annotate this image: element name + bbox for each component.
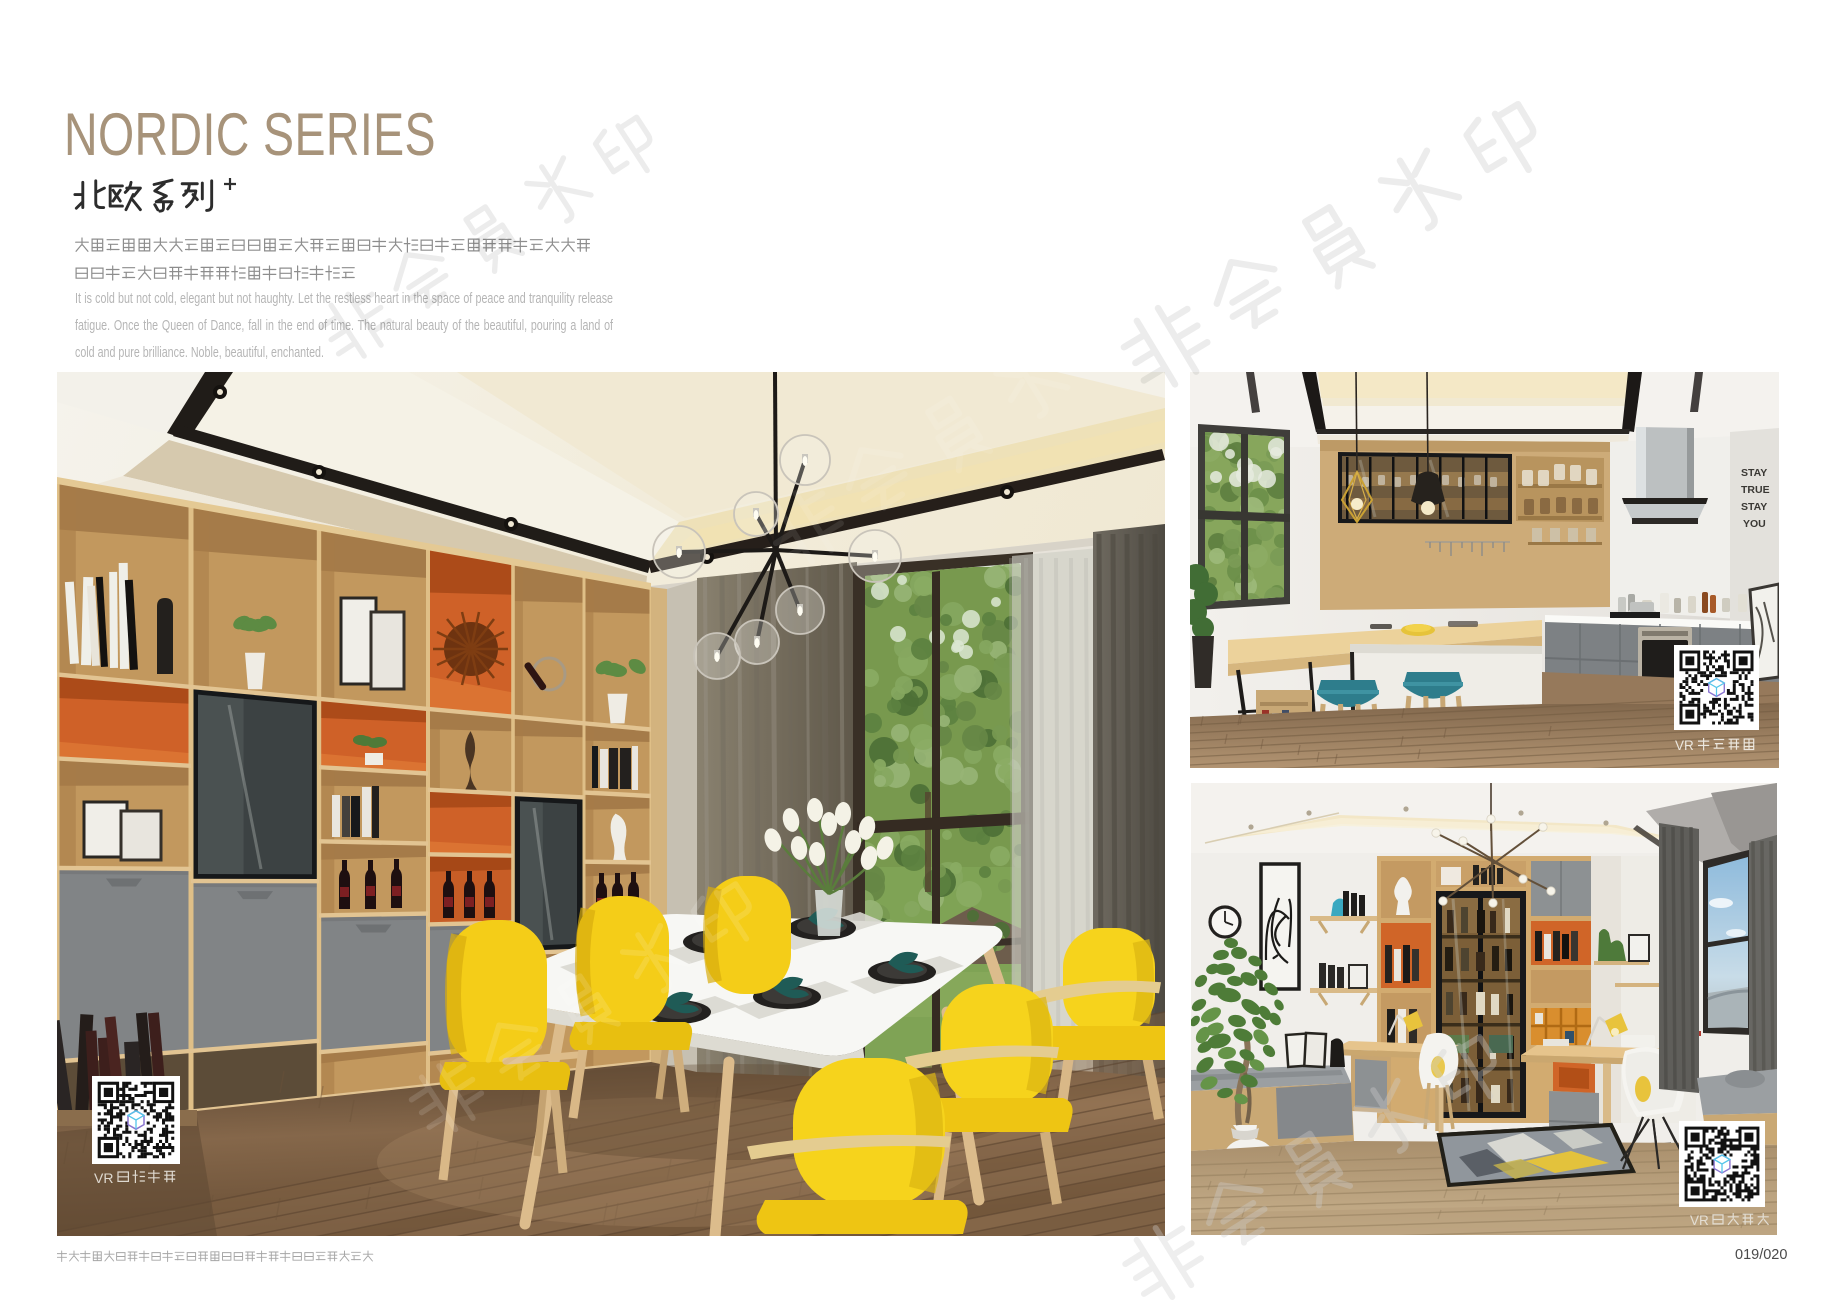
svg-text:VR: VR [94,1170,113,1186]
svg-text:VR: VR [1690,1213,1709,1228]
svg-text:YOU: YOU [1743,518,1766,530]
svg-text:STAY: STAY [1741,467,1767,479]
svg-text:TRUE: TRUE [1741,484,1770,496]
svg-text:STAY: STAY [1741,501,1767,513]
svg-text:VR: VR [1675,738,1694,753]
